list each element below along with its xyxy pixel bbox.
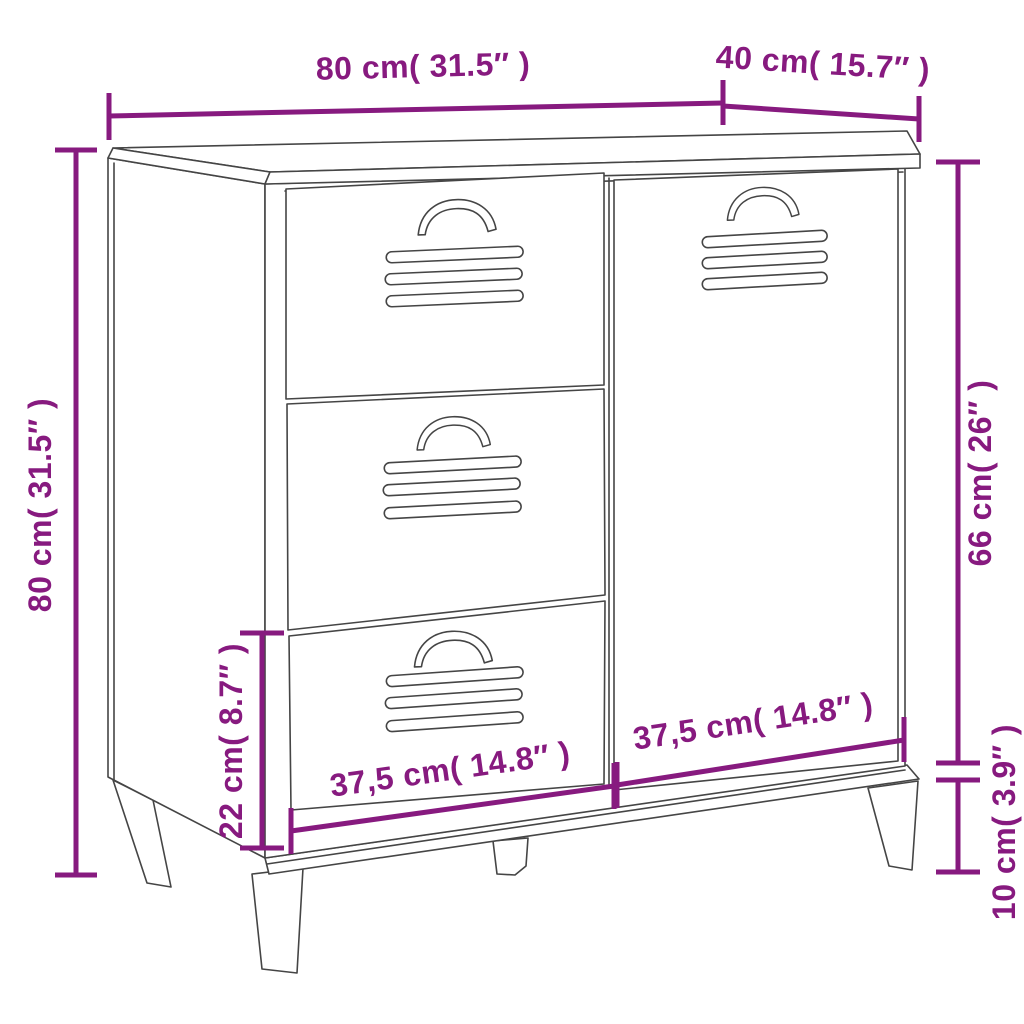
leg-front-right [868, 781, 918, 870]
leg-height-label: 10 cm( 3.9″ ) [986, 724, 1022, 920]
dimension-line [109, 103, 723, 116]
dimension-leg-height: 10 cm( 3.9″ ) [936, 724, 1022, 920]
leg-back-middle [493, 838, 528, 875]
leg-front-left [252, 868, 303, 973]
diagram-canvas: 80 cm( 31.5″ ) 40 cm( 15.7″ ) 80 cm( 31.… [0, 0, 1024, 1024]
left-height-label: 80 cm( 31.5″ ) [22, 398, 58, 612]
dimension-top-width: 80 cm( 31.5″ ) [109, 45, 723, 140]
top-depth-label: 40 cm( 15.7″ ) [715, 38, 931, 87]
cabinet-drawing [108, 131, 920, 973]
dimension-left-height: 80 cm( 31.5″ ) [22, 150, 97, 875]
drawer-height-label: 22 cm( 8.7″ ) [213, 643, 249, 839]
top-width-label: 80 cm( 31.5″ ) [315, 45, 530, 87]
cabinet-dimension-diagram: 80 cm( 31.5″ ) 40 cm( 15.7″ ) 80 cm( 31.… [0, 0, 1024, 1024]
dimension-line [723, 106, 919, 119]
door-height-label: 66 cm( 26″ ) [962, 380, 998, 567]
dimension-top-depth: 40 cm( 15.7″ ) [715, 38, 931, 142]
dimension-door-height: 66 cm( 26″ ) [936, 162, 998, 763]
